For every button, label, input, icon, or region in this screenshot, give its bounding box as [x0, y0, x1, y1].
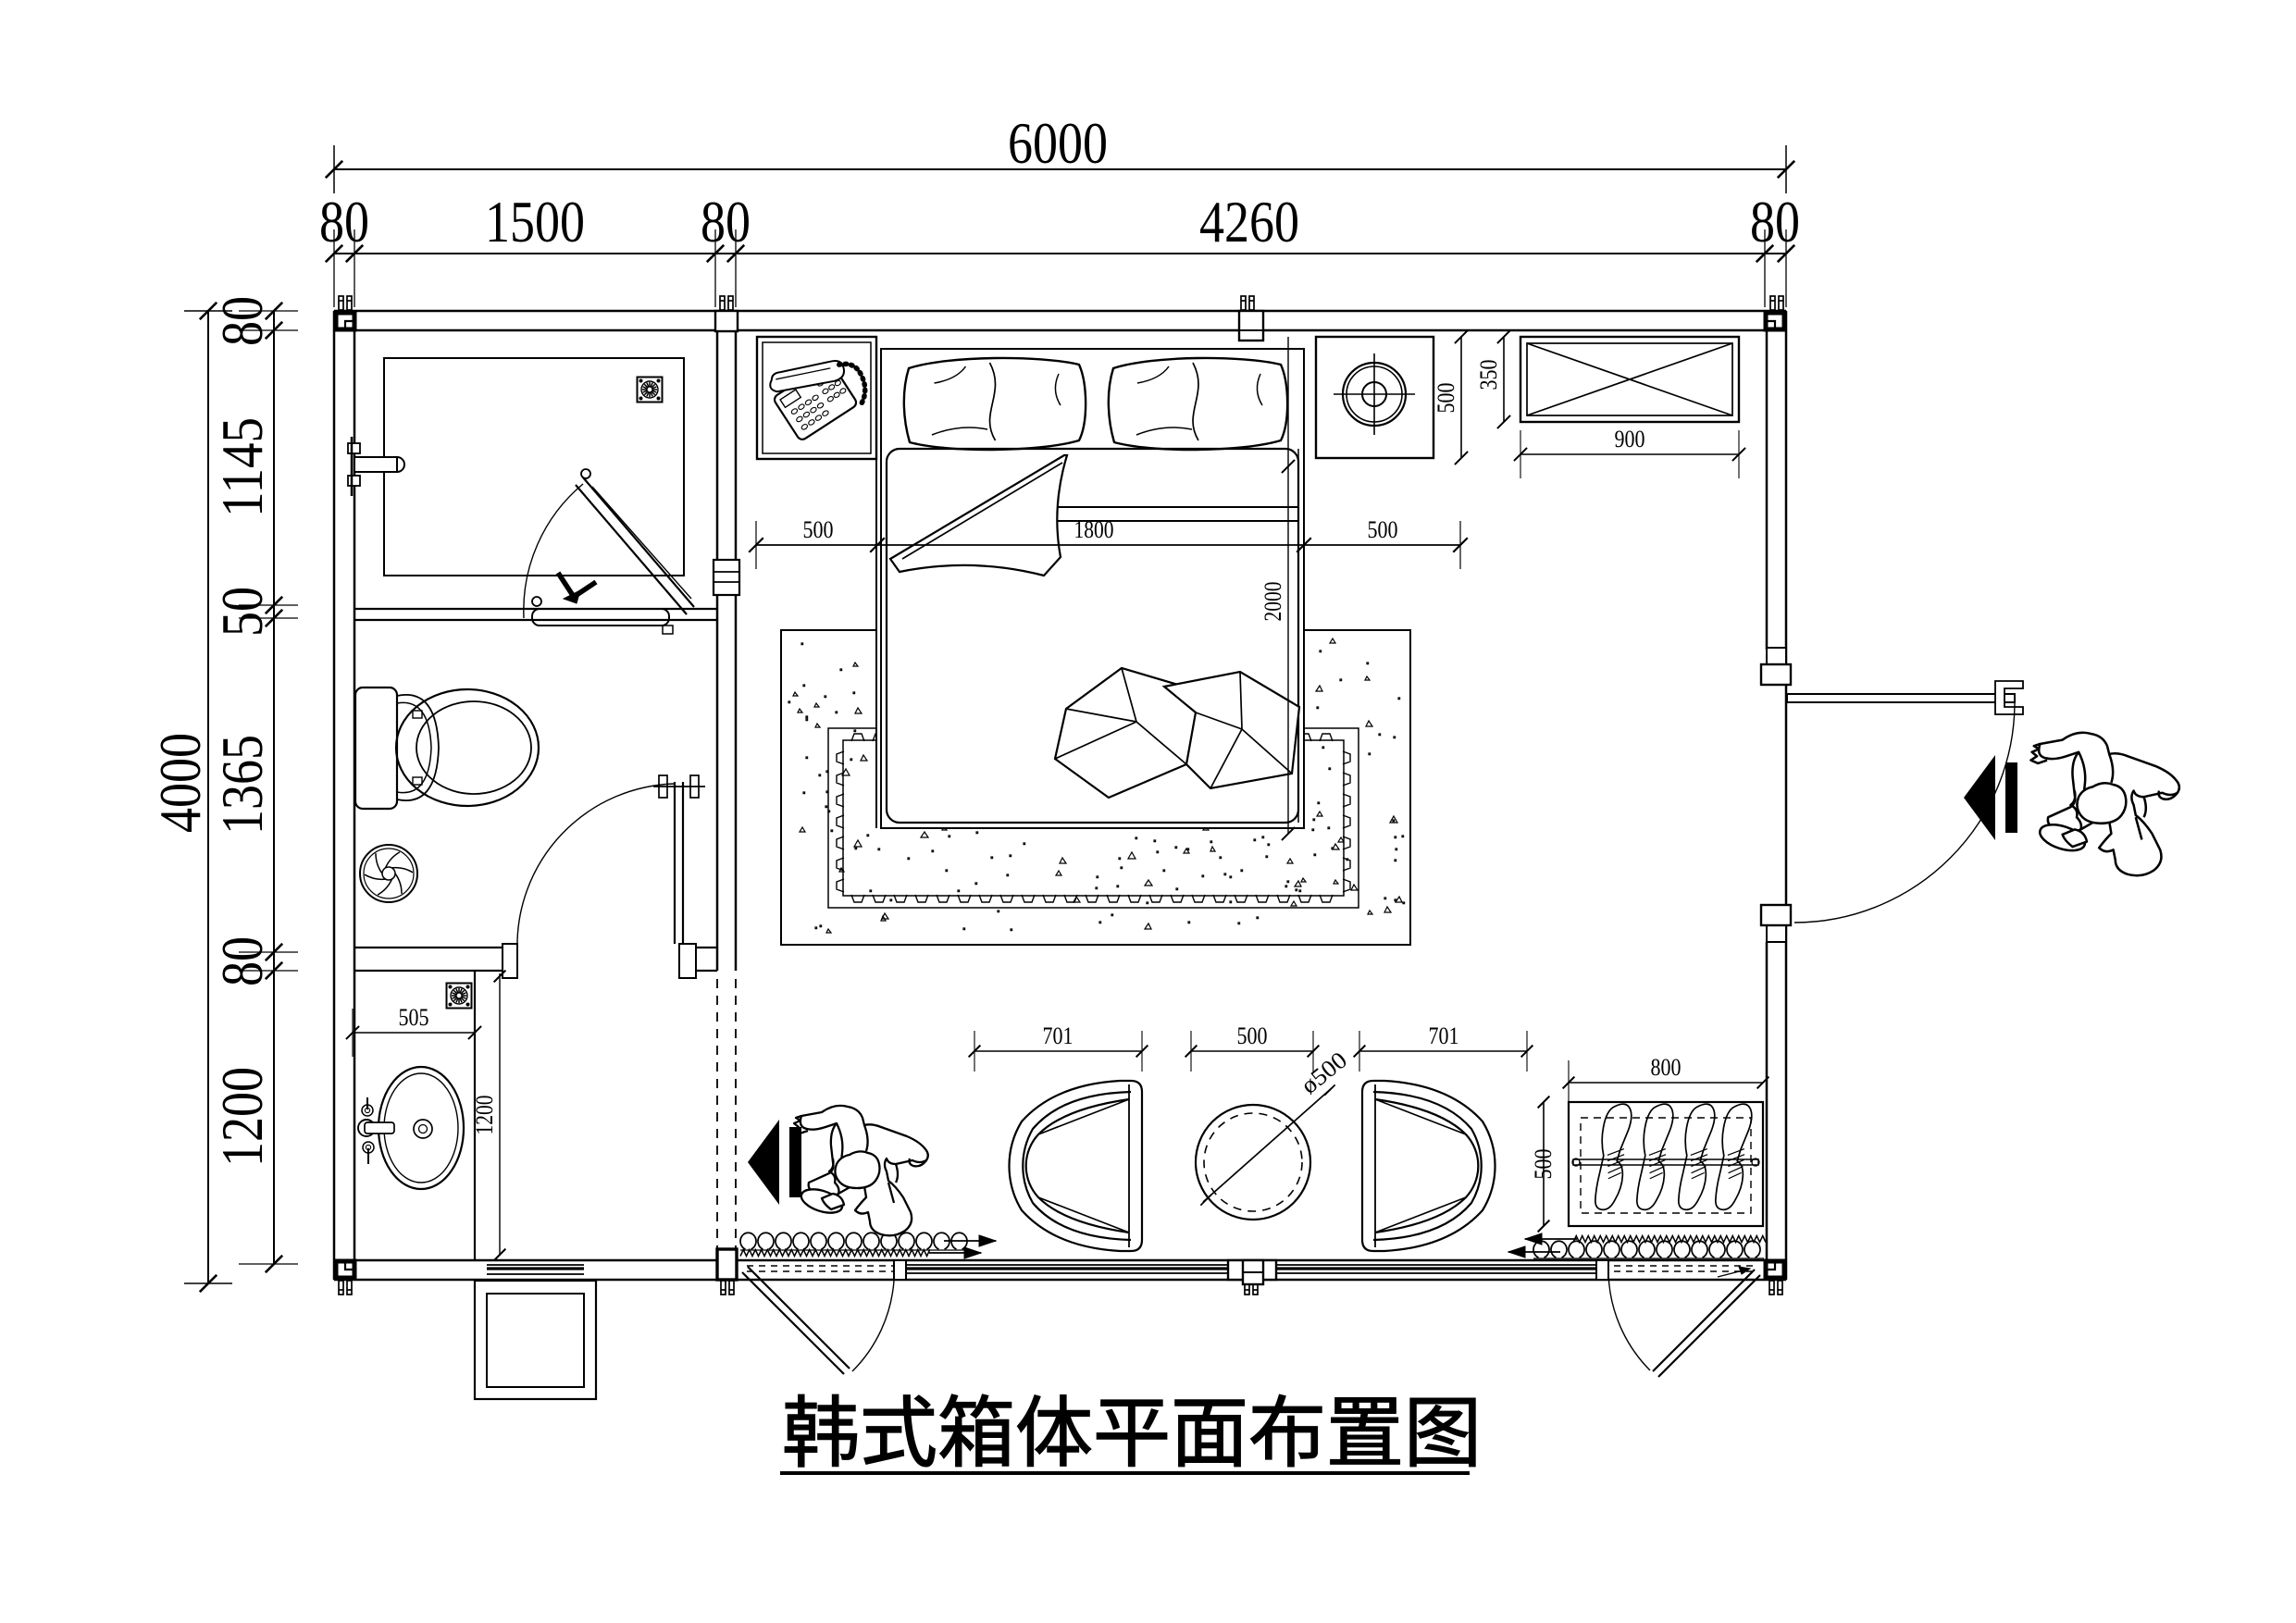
svg-text:80: 80 — [209, 936, 275, 986]
svg-text:1200: 1200 — [471, 1096, 498, 1135]
svg-text:500: 500 — [1433, 383, 1459, 414]
svg-text:80: 80 — [209, 296, 275, 346]
svg-text:6000: 6000 — [1008, 110, 1108, 176]
svg-text:900: 900 — [1615, 426, 1645, 452]
svg-text:350: 350 — [1475, 360, 1502, 390]
svg-text:500: 500 — [1530, 1149, 1557, 1180]
svg-text:500: 500 — [1368, 516, 1398, 543]
svg-text:1800: 1800 — [1074, 516, 1114, 543]
svg-text:500: 500 — [1237, 1022, 1268, 1049]
svg-text:80: 80 — [1750, 189, 1800, 254]
svg-text:500: 500 — [803, 516, 834, 543]
svg-text:1365: 1365 — [209, 735, 275, 835]
svg-text:505: 505 — [399, 1004, 429, 1031]
svg-text:50: 50 — [209, 587, 275, 637]
svg-text:4260: 4260 — [1199, 189, 1299, 254]
svg-text:80: 80 — [701, 189, 751, 254]
svg-text:4000: 4000 — [147, 733, 213, 833]
svg-text:701: 701 — [1043, 1022, 1074, 1049]
svg-text:800: 800 — [1651, 1054, 1682, 1081]
svg-text:701: 701 — [1429, 1022, 1459, 1049]
svg-text:1500: 1500 — [485, 189, 585, 254]
svg-text:1145: 1145 — [209, 417, 275, 517]
svg-text:1200: 1200 — [209, 1067, 275, 1167]
svg-text:80: 80 — [319, 189, 369, 254]
svg-text:2000: 2000 — [1260, 582, 1286, 622]
